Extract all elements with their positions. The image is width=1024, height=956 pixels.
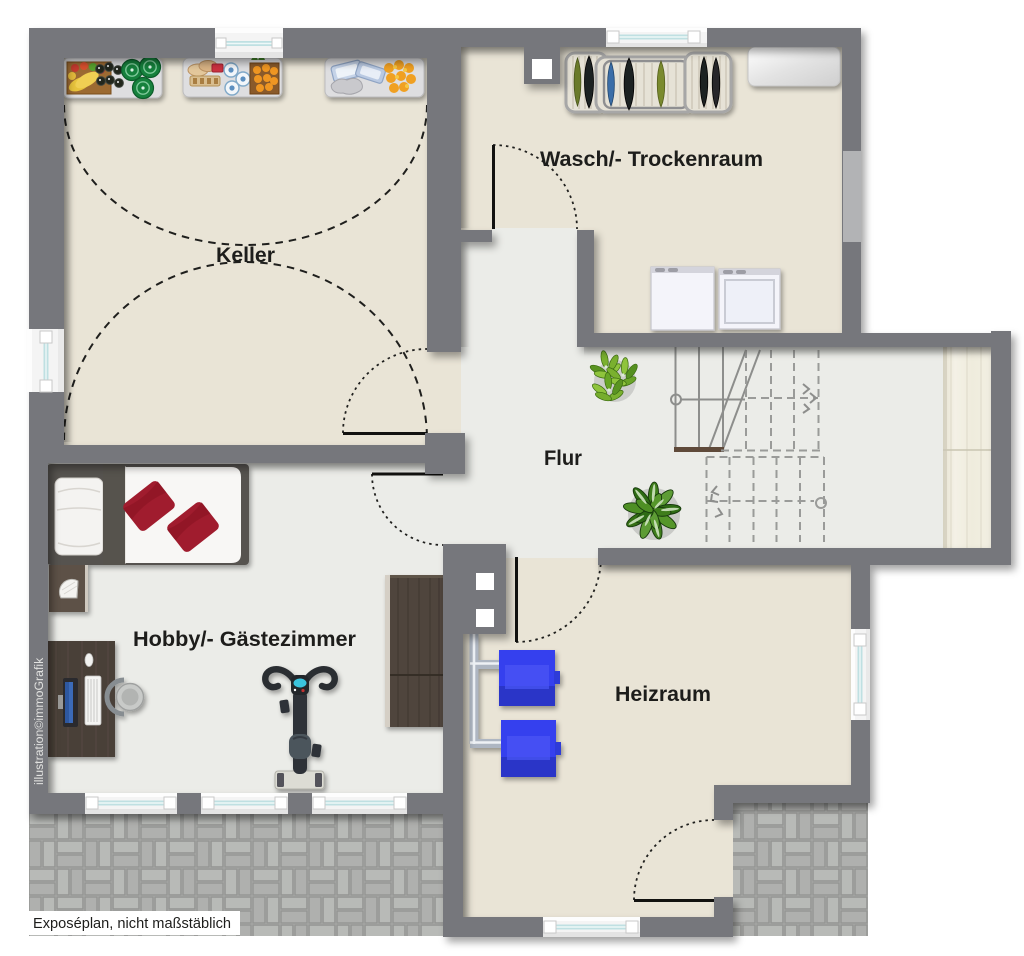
svg-text:Heizraum: Heizraum — [615, 683, 711, 706]
svg-text:illustration©immoGrafik: illustration©immoGrafik — [32, 657, 46, 785]
svg-text:Hobby/- Gästezimmer: Hobby/- Gästezimmer — [133, 628, 356, 651]
svg-text:Flur: Flur — [544, 447, 582, 470]
svg-text:Wasch/- Trockenraum: Wasch/- Trockenraum — [540, 148, 763, 171]
svg-text:Exposéplan, nicht maßstäblich: Exposéplan, nicht maßstäblich — [33, 916, 231, 932]
svg-text:Keller: Keller — [216, 244, 275, 267]
